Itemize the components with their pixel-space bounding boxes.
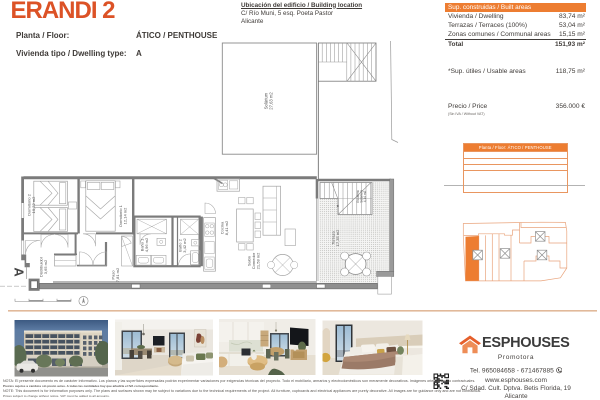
svg-text:3,65 m2: 3,65 m2	[43, 259, 48, 274]
svg-text:4,96 m2: 4,96 m2	[144, 237, 149, 252]
svg-text:8,41 m2: 8,41 m2	[224, 220, 229, 235]
svg-text:10,32 m2: 10,32 m2	[31, 196, 36, 213]
svg-text:A: A	[12, 267, 27, 277]
svg-text:17,35 m2: 17,35 m2	[335, 229, 340, 246]
svg-text:21,58 m2: 21,58 m2	[256, 252, 261, 269]
svg-text:7,81 m2: 7,81 m2	[115, 267, 120, 282]
svg-text:4,14 m2: 4,14 m2	[363, 191, 367, 203]
svg-text:3,42 m2: 3,42 m2	[182, 237, 187, 252]
svg-text:12,14 m2: 12,14 m2	[122, 207, 127, 224]
svg-text:27,63 m2: 27,63 m2	[268, 92, 273, 110]
